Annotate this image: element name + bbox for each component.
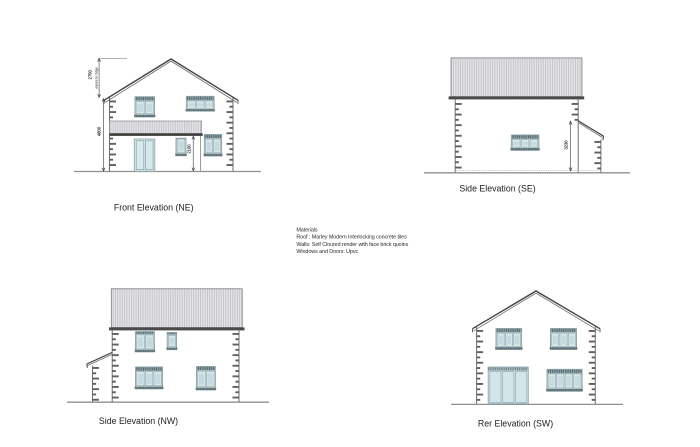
svg-text:Roof : Marley Modern Interlock: Roof : Marley Modern Interlocking concre… <box>296 235 407 241</box>
svg-text:3230: 3230 <box>564 140 569 150</box>
svg-text:Side Elevation (SE): Side Elevation (SE) <box>459 184 535 194</box>
svg-text:Front Elevation (NE): Front Elevation (NE) <box>114 203 194 213</box>
svg-text:Windows and Doors: Upvc: Windows and Doors: Upvc <box>296 249 358 255</box>
svg-text:eaves to ridge: eaves to ridge <box>94 67 98 88</box>
svg-text:Materials: Materials <box>296 227 318 233</box>
svg-text:2750: 2750 <box>88 69 93 79</box>
svg-text:Walls: Self Cloured render wit: Walls: Self Cloured render with face bri… <box>296 242 408 248</box>
svg-text:2100: 2100 <box>186 144 191 154</box>
svg-text:4800: 4800 <box>97 126 102 136</box>
svg-text:Rer Elevation (SW): Rer Elevation (SW) <box>478 419 553 429</box>
svg-text:Side Elevation (NW): Side Elevation (NW) <box>99 416 178 426</box>
